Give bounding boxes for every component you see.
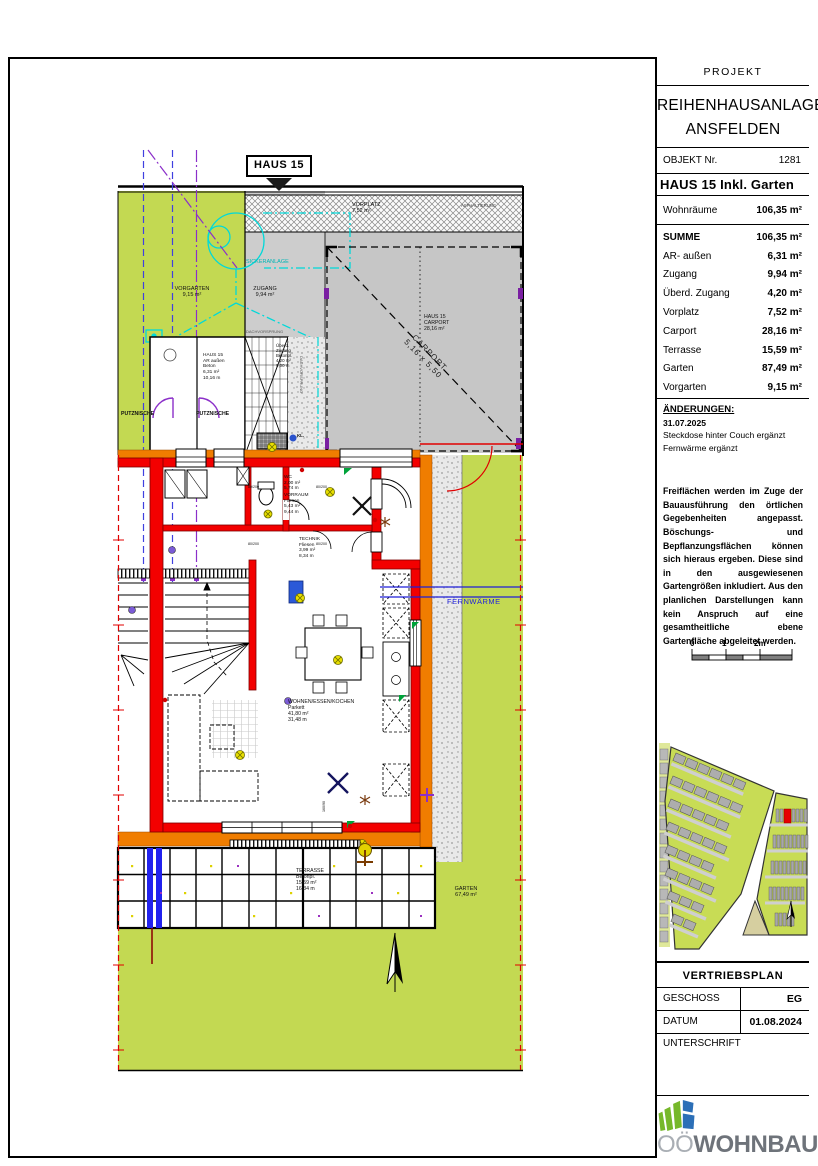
scale-tick-1: 1 [722,639,726,648]
company-logo: OÖWOHNBAU [657,1096,809,1156]
area-row: Überd. Zugang4,20 m² [657,284,809,303]
label-carport: HAUS 15 CARPORT 28,16 m² [424,314,449,332]
label-dachvorsprung-h: DACHVORSPRUNG [246,330,283,335]
area-row: AR- außen6,31 m² [657,247,809,266]
area-row: Terrasse15,59 m² [657,341,809,360]
wohnraeume-label: Wohnräume [663,205,717,216]
area-value: 9,15 m² [768,382,802,393]
area-label: Vorgarten [663,382,706,393]
logo-name: WOHNBAU [693,1131,817,1158]
label-vorgarten: VORGARTEN 9,15 m² [175,286,210,299]
label-ar-aussen: HAUS 15 AR außen Beton 6,31 m² 10,16 m [203,353,225,381]
area-value: 9,94 m² [768,269,802,280]
notes-cell: ÄNDERUNGEN: 31.07.2025 Steckdose hinter … [657,399,809,962]
scale-bar: 0 1 2m [690,639,796,663]
label-zugang: ZUGANG 9,94 m² [253,286,277,299]
geschoss-label: GESCHOSS [657,988,741,1010]
summe-row: SUMME 106,35 m² [657,228,809,247]
label-door-size: 80/200 [248,485,259,489]
label-garten: GARTEN 67,49 m² [455,886,478,899]
area-row: Vorplatz7,52 m² [657,303,809,322]
aenderungen-header: ÄNDERUNGEN: [663,403,803,417]
logo-mark [657,1098,697,1132]
label-putznische-1: PUTZNISCHE [121,411,154,417]
label-door-size: 80/200 [316,542,327,546]
disclaimer-text: Freiflächen werden im Zuge der Bauausfüh… [663,485,803,649]
label-technik: TECHNIK Fliesen 3,99 m² 8,34 m [299,537,320,560]
area-label: Garten [663,363,694,374]
label-door-size: 80/200 [248,542,259,546]
area-row: Carport28,16 m² [657,322,809,341]
title-block: PROJEKT REIHENHAUSANLAGE ANSFELDEN OBJEK… [655,57,809,1158]
datum-label: DATUM [657,1011,741,1033]
plan-type: VERTRIEBSPLAN [657,962,809,988]
label-ueberd-zugang: Überd. Zugang Betonpl. 4,20 m² 9,00 m [276,344,292,369]
datum-value: 01.08.2024 [741,1011,809,1033]
aenderungen-date: 31.07.2025 [663,417,803,429]
label-vorraum: VORRAUM Fliesen 5,43 m² 9,44 m [284,493,309,516]
objekt-row: OBJEKT Nr. 1281 [657,148,809,174]
geschoss-row: GESCHOSS EG [657,988,809,1011]
wohnraeume-row: Wohnräume 106,35 m² [657,196,809,225]
logo-prefix: OÖ [657,1131,693,1158]
label-fernwaerme: FERNWÄRME [447,598,501,607]
unterschrift-row: UNTERSCHRIFT [657,1034,809,1096]
area-value: 15,59 m² [762,345,802,356]
label-terrasse: TERRASSE Betonpl. 15,59 m² 16,34 m [296,868,324,893]
area-row: Vorgarten9,15 m² [657,378,809,397]
area-label: Carport [663,326,696,337]
area-row: Zugang9,94 m² [657,266,809,285]
logo-wordmark: OÖWOHNBAU [657,1133,809,1157]
label-wc: WC 2,00 m² 5,74 m [284,475,300,492]
wohnraeume-value: 106,35 m² [756,205,802,216]
area-label: Vorplatz [663,307,699,318]
object-title: HAUS 15 Inkl. Garten [657,174,809,196]
aenderungen-item: Steckdose hinter Couch ergänzt [663,429,803,441]
label-vorplatz: VORPLATZ 7,52 m² [352,202,381,215]
label-putznische-2: PUTZNISCHE [196,411,229,417]
selected-house-15 [784,809,791,823]
area-value: 6,31 m² [768,251,802,262]
area-label: Zugang [663,269,697,280]
site-plan-map [659,731,809,957]
area-label: AR- außen [663,251,711,262]
aenderungen-block: ÄNDERUNGEN: 31.07.2025 Steckdose hinter … [663,403,803,454]
area-summary-table: SUMME 106,35 m² AR- außen6,31 m² Zugang9… [657,225,809,399]
label-wohnen: WOHNEN/ESSEN/KOCHEN Parkett 41,80 m² 31,… [288,699,354,724]
datum-row: DATUM 01.08.2024 [657,1011,809,1034]
project-name-line1: REIHENHAUSANLAGE [657,94,809,118]
project-name-line2: ANSFELDEN [657,118,809,142]
project-name: REIHENHAUSANLAGE ANSFELDEN [657,86,809,148]
label-window-size: 160/90 [322,801,326,812]
label-door-size: 80/200 [316,485,327,489]
objekt-label: OBJEKT Nr. [663,155,717,166]
projekt-header: PROJEKT [657,57,809,86]
geschoss-value: EG [741,988,809,1010]
label-carport-diagonal: CARPORT 5,16 x 5,50 [402,331,451,381]
floor-plan-labels: VORGARTEN 9,15 m² ZUGANG 9,94 m² SICKERA… [0,0,655,1166]
label-dachvorsprung-v: DACHVORSPRUNG [298,356,303,393]
area-value: 4,20 m² [768,288,802,299]
label-kl: KL. [297,433,304,438]
label-sickeranlage: SICKERANLAGE [246,259,289,265]
area-value: 7,52 m² [768,307,802,318]
summe-value: 106,35 m² [756,232,802,243]
aenderungen-item: Fernwärme ergänzt [663,442,803,454]
label-asphaltierung: ASPHALTIERUNG [461,204,496,209]
area-label: Überd. Zugang [663,288,730,299]
scale-tick-2m: 2m [754,639,766,648]
scale-tick-0: 0 [690,639,694,648]
area-value: 28,16 m² [762,326,802,337]
objekt-number: 1281 [779,155,801,166]
summe-label: SUMME [663,232,700,243]
area-label: Terrasse [663,345,701,356]
scale-bar-graphic [690,649,796,663]
area-value: 87,49 m² [762,363,802,374]
area-row: Garten87,49 m² [657,360,809,379]
